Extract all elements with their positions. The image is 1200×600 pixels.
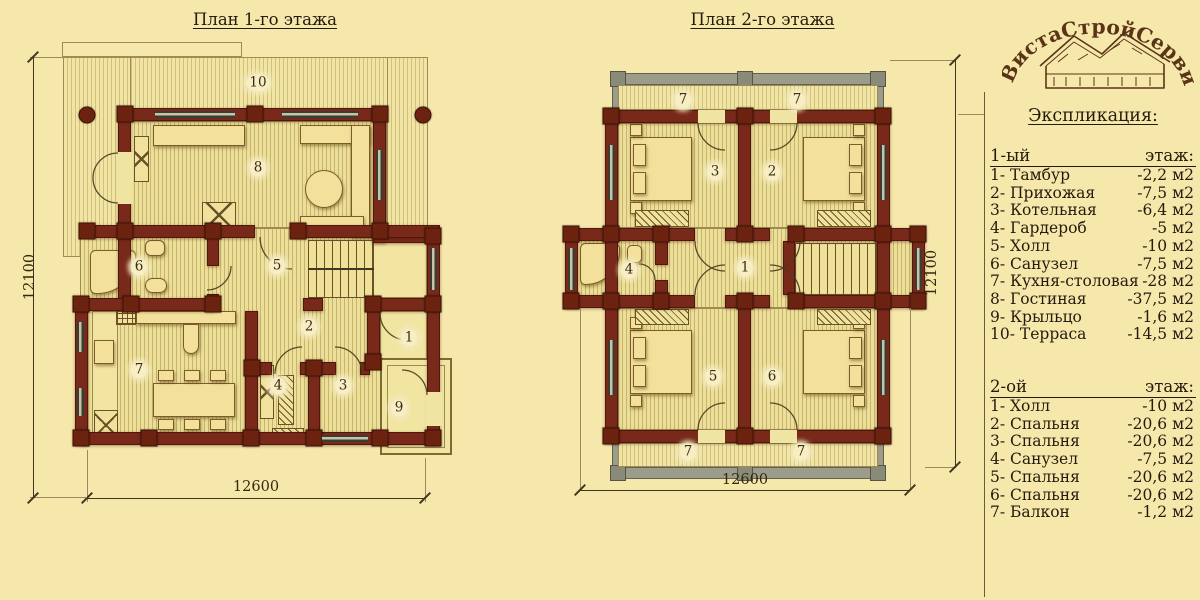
legend-row: 8- Гостиная-37,5 м2 xyxy=(990,291,1196,309)
legend-row: 1- Тамбур-2,2 м2 xyxy=(990,167,1196,185)
room-label: 2- Прихожая xyxy=(990,185,1095,203)
room-badge: 6 xyxy=(764,369,780,386)
room-area: -7,5 м2 xyxy=(1137,451,1194,469)
legend-row: 10- Терраса-14,5 м2 xyxy=(990,326,1196,344)
room-area: -28 м2 xyxy=(1142,273,1194,291)
door-arc xyxy=(93,178,118,203)
room-area: -20,6 м2 xyxy=(1127,416,1194,434)
room-area: -6,4 м2 xyxy=(1137,202,1194,220)
legend-row: 4- Санузел-7,5 м2 xyxy=(990,451,1196,469)
floor2-header-right: этаж: xyxy=(1145,377,1194,396)
room-badge: 7 xyxy=(675,92,691,109)
door-arc xyxy=(698,403,725,430)
room-label: 9- Крыльцо xyxy=(990,309,1082,327)
room-badge: 7 xyxy=(131,362,147,379)
room-badge: 4 xyxy=(621,262,637,279)
room-badge: 5 xyxy=(705,369,721,386)
room-label: 10- Терраса xyxy=(990,326,1086,344)
legend-row: 2- Прихожая-7,5 м2 xyxy=(990,185,1196,203)
legend-row: 1- Холл-10 м2 xyxy=(990,398,1196,416)
door-arc xyxy=(335,347,362,374)
room-label: 4- Гардероб xyxy=(990,220,1087,238)
room-badge: 7 xyxy=(793,444,809,461)
dimension-width: 12600 xyxy=(87,479,425,495)
room-badge: 5 xyxy=(269,258,285,275)
extension-line xyxy=(30,57,63,58)
legend-row: 2- Спальня-20,6 м2 xyxy=(990,416,1196,434)
room-badge: 2 xyxy=(301,319,317,336)
floor2-header-left: 2-ой xyxy=(990,377,1027,396)
legend-title: Экспликация: xyxy=(990,106,1196,126)
legend-row: 6- Спальня-20,6 м2 xyxy=(990,487,1196,505)
legend-row: 7- Балкон-1,2 м2 xyxy=(990,504,1196,522)
door-arc xyxy=(770,241,800,271)
legend-floor2-header: 2-ой этаж: xyxy=(990,377,1196,398)
room-badge: 3 xyxy=(707,164,723,181)
legend-row: 3- Котельная-6,4 м2 xyxy=(990,202,1196,220)
room-badge: 1 xyxy=(737,260,753,277)
floor1-header-left: 1-ый xyxy=(990,146,1030,165)
door-arc-layer xyxy=(555,40,970,520)
legend-floor1-header: 1-ый этаж: xyxy=(990,146,1196,167)
plan2-title: План 2-го этажа xyxy=(555,10,970,29)
door-arc xyxy=(695,265,725,295)
room-label: 5- Спальня xyxy=(990,469,1080,487)
legend-row: 9- Крыльцо-1,6 м2 xyxy=(990,309,1196,327)
floor-plan-2: 7 7 3 2 1 4 5 6 7 7 12600 12100 xyxy=(555,40,970,520)
room-area: -1,6 м2 xyxy=(1137,309,1194,327)
dimension-line xyxy=(955,60,956,467)
room-label: 7- Балкон xyxy=(990,504,1070,522)
room-area: -5 м2 xyxy=(1152,220,1194,238)
dimension-line xyxy=(580,490,910,491)
room-label: 1- Тамбур xyxy=(990,167,1070,185)
legend-row: 7- Кухня-столовая-28 м2 xyxy=(990,273,1196,291)
door-arc xyxy=(639,264,655,280)
extension-line xyxy=(30,497,87,498)
extension-line xyxy=(910,308,911,490)
door-arc xyxy=(770,265,800,295)
door-arc xyxy=(275,347,302,374)
door-arc xyxy=(207,266,231,290)
room-label: 7- Кухня-столовая xyxy=(990,273,1139,291)
dimension-height: 12100 xyxy=(924,243,940,303)
room-badge: 2 xyxy=(764,164,780,181)
door-arc xyxy=(93,153,118,178)
room-label: 4- Санузел xyxy=(990,451,1078,469)
legend-row: 3- Спальня-20,6 м2 xyxy=(990,433,1196,451)
room-badge: 7 xyxy=(789,92,805,109)
room-area: -20,6 м2 xyxy=(1127,487,1194,505)
room-label: 5- Холл xyxy=(990,238,1050,256)
room-area: -14,5 м2 xyxy=(1127,326,1194,344)
room-label: 2- Спальня xyxy=(990,416,1080,434)
room-label: 3- Котельная xyxy=(990,202,1097,220)
extension-line xyxy=(890,60,956,61)
room-area: -7,5 м2 xyxy=(1137,185,1194,203)
room-area: -20,6 м2 xyxy=(1127,469,1194,487)
room-label: 3- Спальня xyxy=(990,433,1080,451)
room-area: -1,2 м2 xyxy=(1137,504,1194,522)
room-area: -37,5 м2 xyxy=(1127,291,1194,309)
door-arc-layer xyxy=(50,40,480,520)
dimension-width: 12600 xyxy=(580,472,910,488)
room-area: -20,6 м2 xyxy=(1127,433,1194,451)
logo-arc-text: ВистаСтройСервис xyxy=(1002,2,1194,89)
room-badge: 8 xyxy=(250,160,266,177)
legend-tick xyxy=(958,114,984,115)
room-label: 6- Санузел xyxy=(990,256,1078,274)
door-arc xyxy=(695,241,725,271)
room-badge: 9 xyxy=(391,400,407,417)
door-arc xyxy=(770,403,797,430)
room-badge: 1 xyxy=(401,330,417,347)
company-logo: ВистаСтройСервис xyxy=(1002,2,1194,94)
door-arc xyxy=(402,370,427,395)
extension-line xyxy=(580,308,581,490)
legend-row: 5- Спальня-20,6 м2 xyxy=(990,469,1196,487)
room-badge: 7 xyxy=(680,444,696,461)
room-area: -2,2 м2 xyxy=(1137,167,1194,185)
room-badge: 3 xyxy=(335,378,351,395)
legend-row: 6- Санузел-7,5 м2 xyxy=(990,256,1196,274)
floor-plan-1: 10 8 6 5 2 1 7 4 3 9 12600 12100 xyxy=(50,40,480,520)
legend-panel: Экспликация: 1-ый этаж: 1- Тамбур-2,2 м2… xyxy=(984,92,1198,597)
door-arc xyxy=(770,123,797,150)
room-area: -10 м2 xyxy=(1142,398,1194,416)
legend-row: 5- Холл-10 м2 xyxy=(990,238,1196,256)
room-label: 6- Спальня xyxy=(990,487,1080,505)
room-badge: 10 xyxy=(246,75,269,92)
room-badge: 6 xyxy=(131,259,147,276)
logo-graphic: ВистаСтройСервис xyxy=(1002,2,1194,94)
room-label: 8- Гостиная xyxy=(990,291,1087,309)
room-label: 1- Холл xyxy=(990,398,1050,416)
plan1-title: План 1-го этажа xyxy=(50,10,480,29)
floor1-header-right: этаж: xyxy=(1145,146,1194,165)
room-area: -7,5 м2 xyxy=(1137,256,1194,274)
legend-spacer xyxy=(990,344,1196,377)
door-arc xyxy=(698,123,725,150)
blueprint-sheet: { "colors": { "background": "#f6e8ab", "… xyxy=(0,0,1200,600)
room-badge: 4 xyxy=(270,378,286,395)
room-area: -10 м2 xyxy=(1142,238,1194,256)
dimension-height: 12100 xyxy=(22,247,38,307)
legend-row: 4- Гардероб-5 м2 xyxy=(990,220,1196,238)
dimension-line xyxy=(87,498,425,499)
